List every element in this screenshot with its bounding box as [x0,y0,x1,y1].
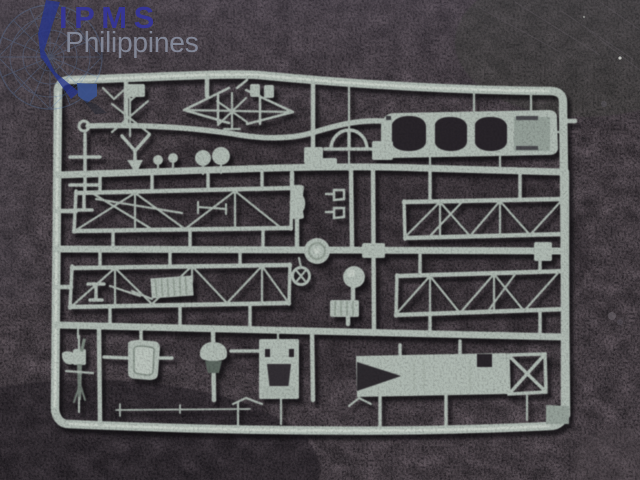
svg-text:Philippines: Philippines [65,27,199,59]
